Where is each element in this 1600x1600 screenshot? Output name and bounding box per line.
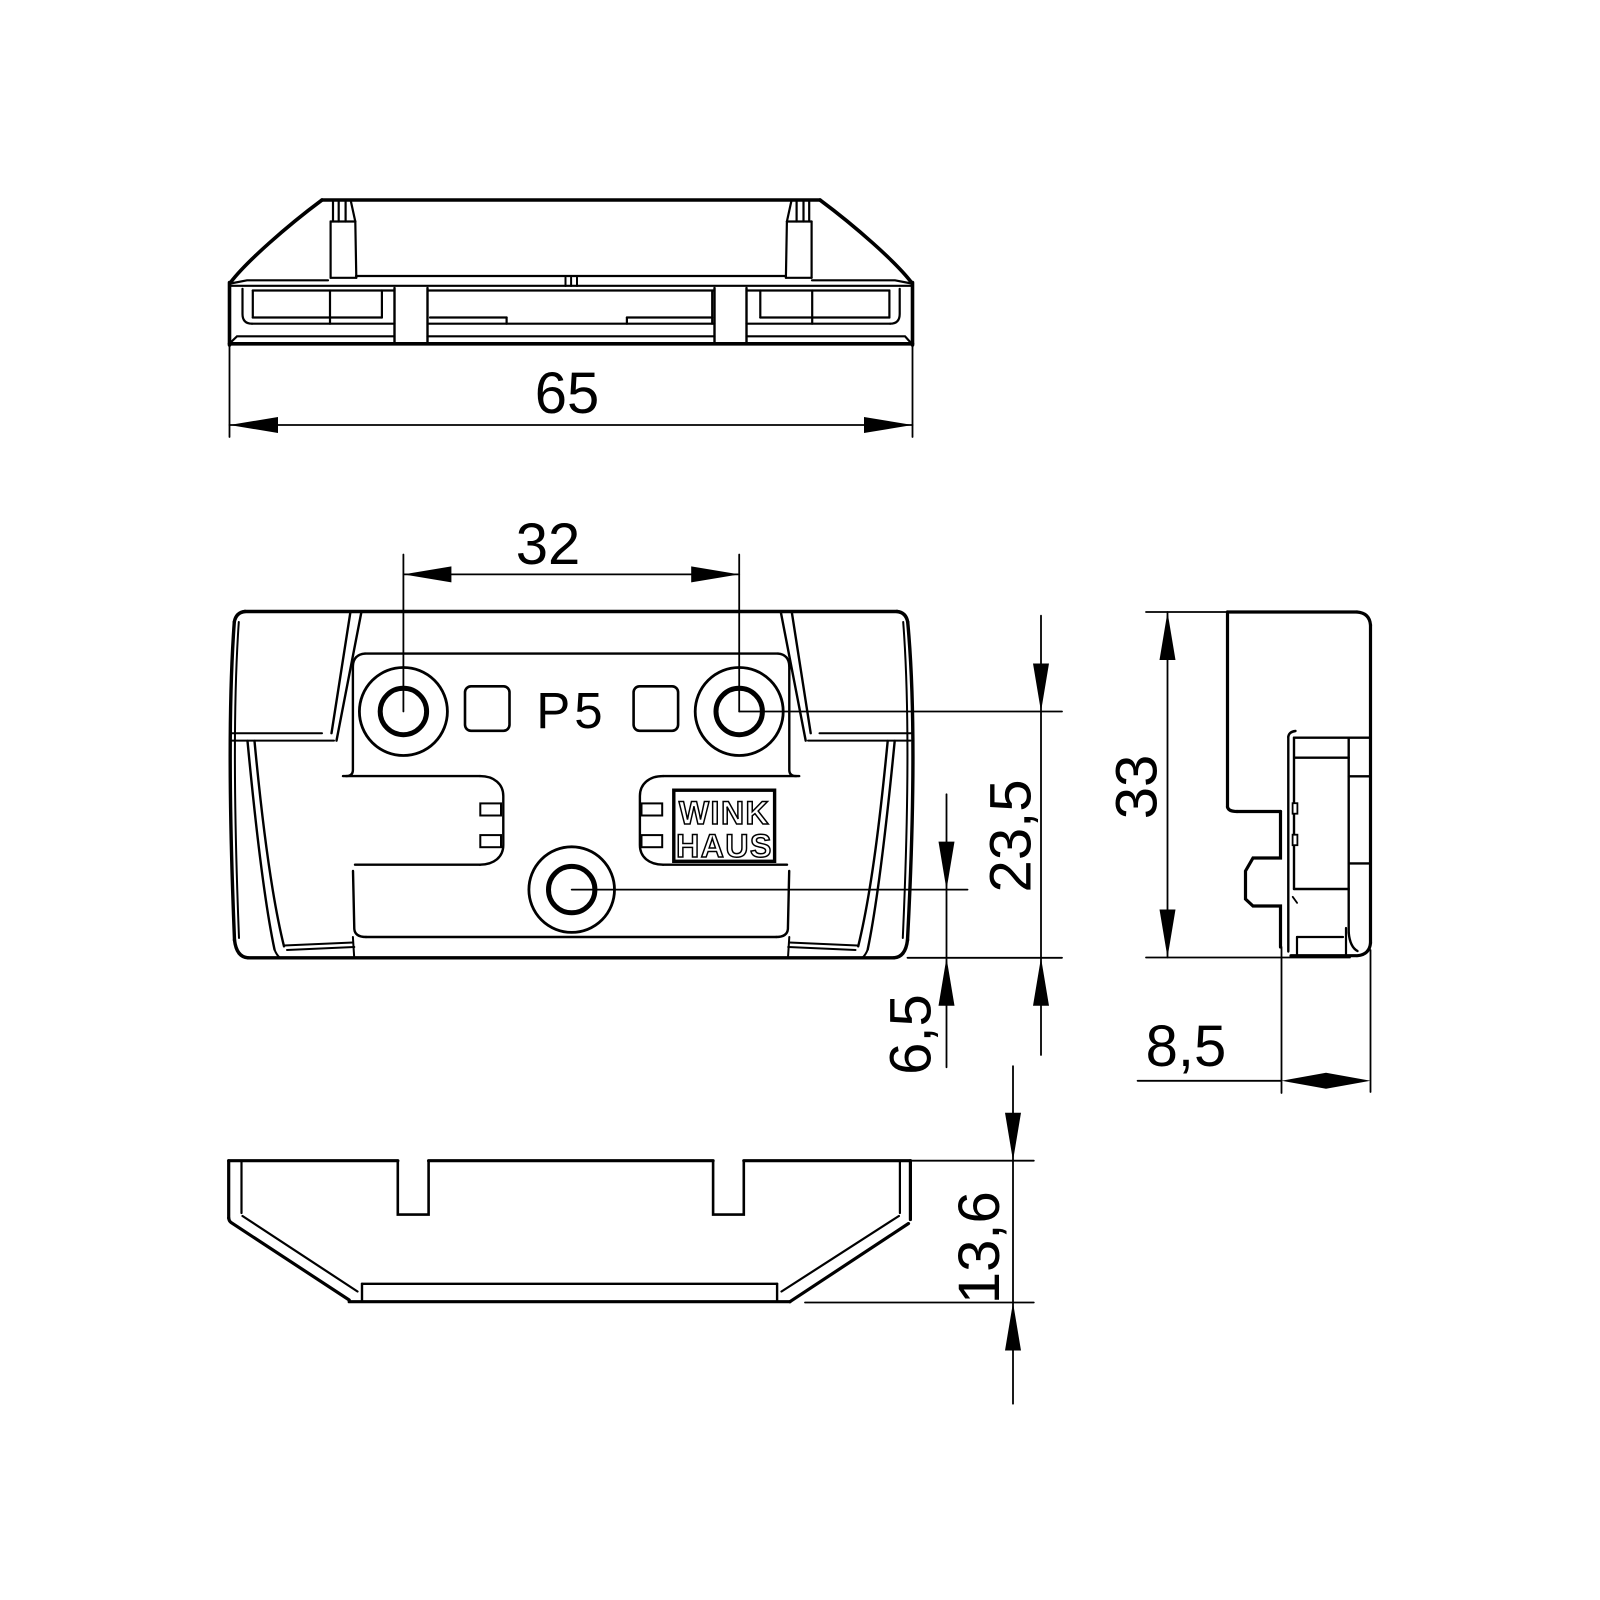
svg-text:33: 33 [1105, 755, 1170, 820]
svg-text:32: 32 [516, 512, 581, 577]
svg-text:65: 65 [535, 361, 600, 426]
svg-text:8,5: 8,5 [1146, 1014, 1227, 1079]
svg-text:P5: P5 [536, 682, 606, 739]
svg-text:6,5: 6,5 [879, 994, 944, 1075]
svg-text:HAUS: HAUS [676, 828, 773, 864]
svg-text:23,5: 23,5 [979, 780, 1044, 893]
svg-text:WINK: WINK [679, 795, 770, 831]
svg-text:13,6: 13,6 [947, 1191, 1012, 1304]
